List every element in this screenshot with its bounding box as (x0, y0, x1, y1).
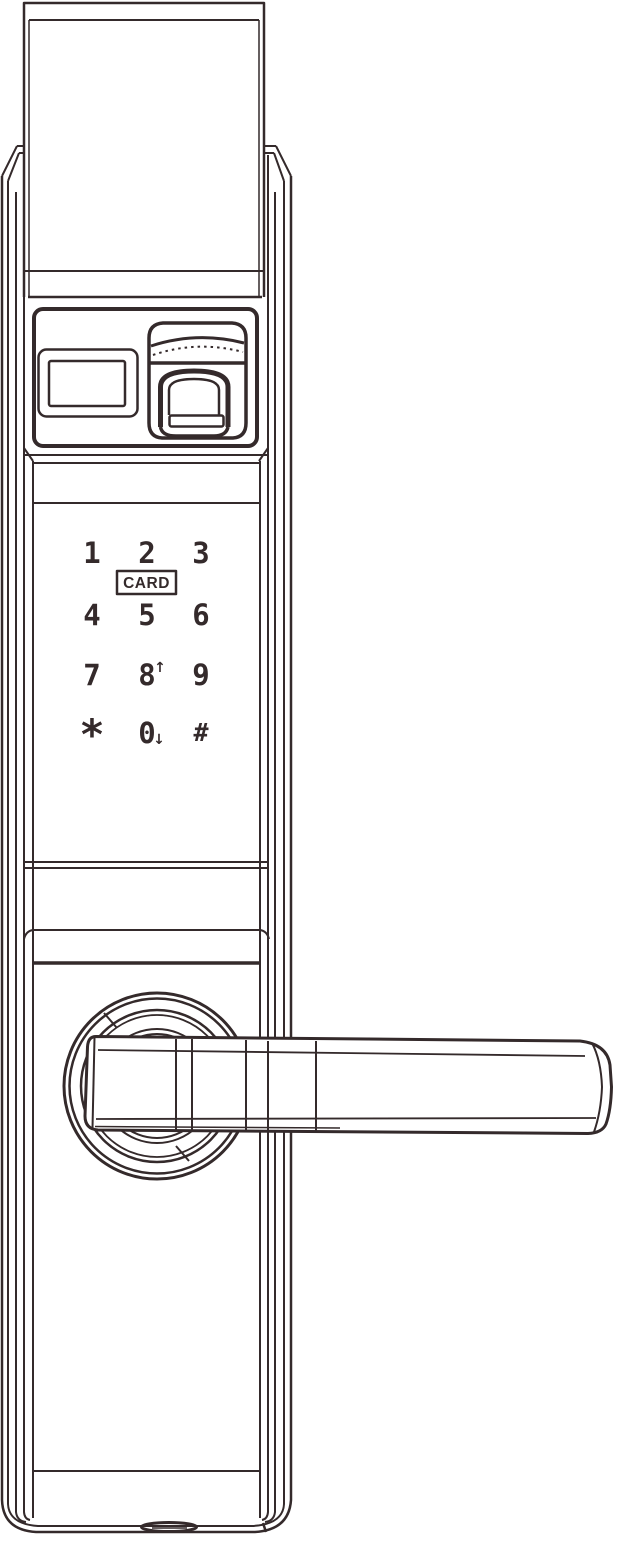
key-6[interactable]: 6 (192, 598, 209, 632)
key-hash[interactable]: # (193, 718, 208, 747)
screenshot-root: 1 2 3 CARD 4 5 6 7 8 ↑ 9 * 0 ↓ # (0, 0, 617, 1541)
card-reader-key[interactable]: CARD (117, 571, 176, 594)
key-1[interactable]: 1 (83, 536, 100, 570)
fingerprint-arch-inner (169, 379, 219, 415)
top-cover (24, 3, 264, 297)
top-cover-inner-edges (29, 20, 259, 297)
key-0-down-arrow-icon: ↓ (153, 732, 165, 748)
key-8-up-arrow-icon: ↑ (154, 660, 166, 676)
display-window-inner (49, 361, 125, 406)
key-3[interactable]: 3 (192, 536, 209, 570)
fingerprint-sensor[interactable] (149, 323, 246, 438)
fingerprint-top-arc (151, 338, 244, 346)
key-8[interactable]: 8 (138, 658, 155, 692)
card-label: CARD (123, 575, 170, 592)
mid-groove-line (24, 930, 269, 939)
lever-bottom-inner-line (96, 1118, 596, 1119)
key-star[interactable]: * (79, 710, 104, 759)
fingerprint-dotted-arc (153, 347, 243, 355)
top-cover-outline (24, 3, 264, 297)
key-4[interactable]: 4 (83, 598, 100, 632)
sensor-panel (34, 309, 257, 446)
key-5[interactable]: 5 (138, 598, 155, 632)
key-7[interactable]: 7 (83, 658, 100, 692)
fingerprint-bottom-bar (170, 416, 224, 427)
key-9[interactable]: 9 (192, 658, 209, 692)
body-top-left-chamfer (2, 146, 24, 181)
door-handle-lever[interactable] (85, 1037, 612, 1134)
key-2[interactable]: 2 (138, 536, 155, 570)
display-window (39, 350, 138, 417)
touch-keypad: 1 2 3 CARD 4 5 6 7 8 ↑ 9 * 0 ↓ # (79, 536, 209, 759)
door-lock-line-drawing: 1 2 3 CARD 4 5 6 7 8 ↑ 9 * 0 ↓ # (0, 0, 617, 1541)
fingerprint-bottom-curve (161, 427, 229, 436)
handle-assembly (64, 993, 612, 1179)
body-third-contour (16, 192, 275, 1522)
